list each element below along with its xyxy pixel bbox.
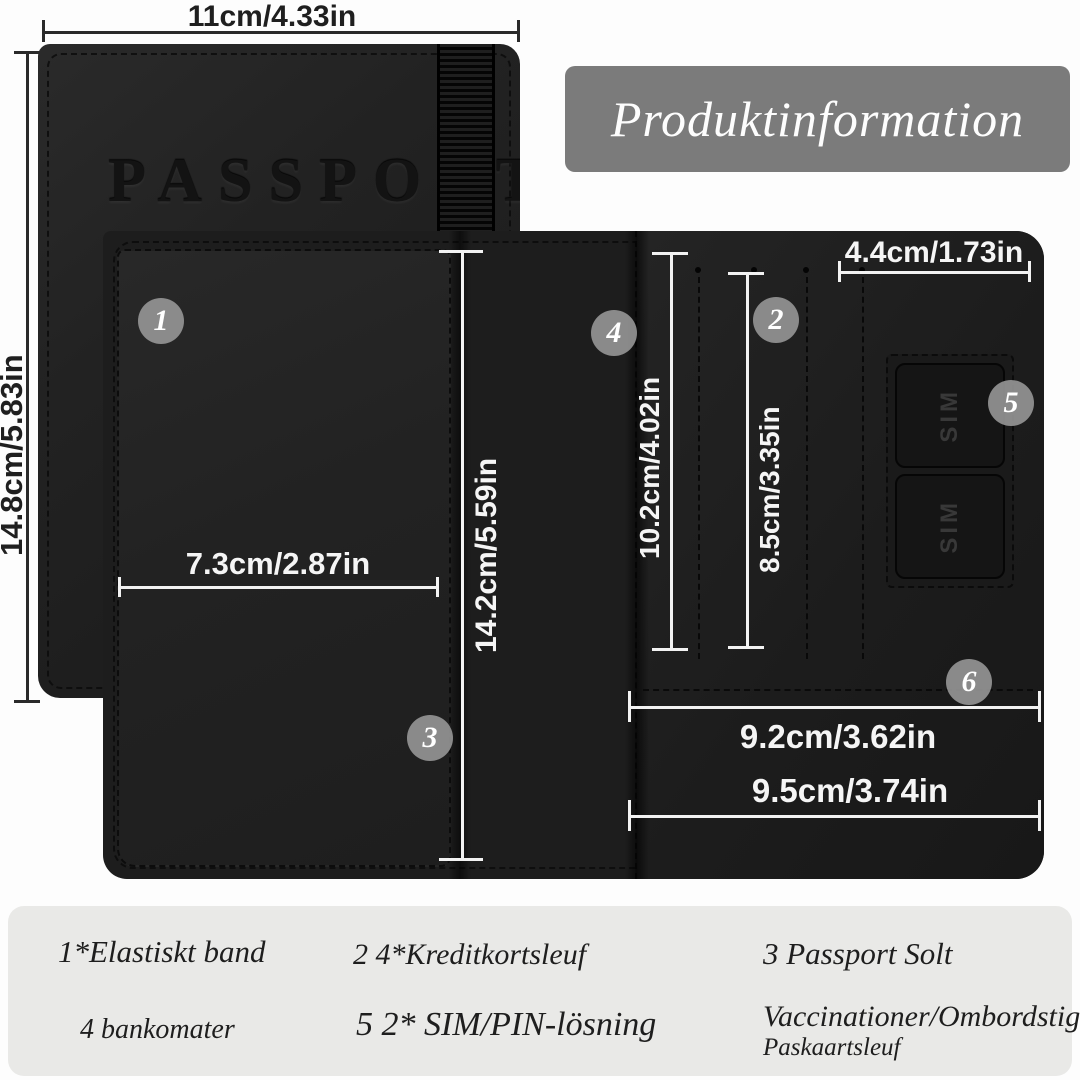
product-infographic: PASSPORT SIM SIM Produktinformation 11cm…	[0, 0, 1080, 1080]
card-slot-stitch	[806, 277, 808, 659]
dim-cover-width-label: 11cm/4.33in	[112, 0, 432, 34]
dim-sim-width-line	[838, 271, 1030, 274]
dim-card-slot-line	[746, 272, 749, 648]
callout-2: 2	[753, 297, 799, 343]
dim-tick	[439, 250, 483, 253]
callout-1: 1	[138, 298, 184, 344]
dim-tick	[14, 700, 40, 703]
dim-outer-pocket-line	[628, 815, 1040, 818]
callout-number: 2	[769, 303, 784, 337]
callout-number: 4	[607, 316, 622, 350]
dim-tick	[118, 577, 121, 597]
sim-slot-label: SIM	[936, 499, 964, 554]
dim-left-pocket-width-label: 7.3cm/2.87in	[118, 546, 438, 582]
sim-slot-label: SIM	[936, 388, 964, 443]
legend-item-5: 5 2* SIM/PIN-lösning	[356, 1006, 656, 1044]
dim-tick	[728, 646, 764, 649]
dim-slot-column-label: 10.2cm/4.02in	[634, 355, 666, 580]
dim-tick	[439, 858, 483, 861]
dim-tick	[628, 691, 631, 722]
dim-tick	[436, 577, 439, 597]
callout-number: 6	[962, 665, 977, 699]
dim-slot-column-line	[670, 252, 673, 650]
callout-3: 3	[407, 715, 453, 761]
sim-slot-2: SIM	[895, 474, 1005, 579]
fold-shadow	[449, 231, 471, 879]
legend-item-1: 1*Elastiskt band	[58, 934, 266, 970]
elastic-band	[437, 44, 495, 242]
legend-item-4: 4 bankomater	[80, 1014, 235, 1046]
callout-4: 4	[591, 310, 637, 356]
title-banner: Produktinformation	[565, 66, 1070, 172]
dim-tick	[42, 20, 45, 42]
dim-cover-height-label: 14.8cm/5.83in	[0, 285, 30, 625]
legend-item-3: 3 Passport Solt	[763, 936, 952, 972]
dim-interior-height-line	[461, 250, 464, 860]
dim-tick	[14, 51, 40, 54]
legend-panel: 1*Elastiskt band 2 4*Kreditkortsleuf 3 P…	[8, 906, 1072, 1076]
card-slot-stitch	[698, 277, 700, 659]
stitch-hole	[803, 267, 809, 273]
legend-item-6-line2: Paskaartsleuf	[763, 1034, 901, 1062]
dim-cover-width-line	[42, 31, 519, 34]
callout-6: 6	[946, 659, 992, 705]
callout-number: 3	[423, 721, 438, 755]
callout-number: 5	[1004, 386, 1019, 420]
callout-number: 1	[154, 304, 169, 338]
dim-inner-pocket-line	[628, 706, 1040, 709]
dim-tick	[652, 648, 688, 651]
dim-card-slot-label: 8.5cm/3.35in	[754, 385, 786, 595]
legend-item-2: 2 4*Kreditkortsleuf	[353, 938, 586, 972]
sim-slot-1: SIM	[895, 363, 1005, 468]
dim-tick	[838, 261, 841, 282]
dim-tick	[517, 20, 520, 42]
legend-item-6-line1: Vaccinationer/Ombordstigning	[763, 1000, 1080, 1034]
dim-tick	[1038, 691, 1041, 722]
dim-sim-width-label: 4.4cm/1.73in	[834, 236, 1034, 270]
callout-5: 5	[988, 380, 1034, 426]
dim-tick	[628, 800, 631, 831]
dim-interior-height-label: 14.2cm/5.59in	[470, 430, 504, 680]
dim-outer-pocket-label: 9.5cm/3.74in	[700, 772, 1000, 810]
page-title: Produktinformation	[611, 90, 1024, 148]
dim-tick	[1038, 800, 1041, 831]
dim-left-pocket-width-line	[118, 586, 438, 589]
dim-inner-pocket-label: 9.2cm/3.62in	[688, 718, 988, 756]
dim-tick	[728, 272, 764, 275]
card-slot-stitch	[862, 277, 864, 659]
dim-tick	[652, 252, 688, 255]
stitch-hole	[695, 267, 701, 273]
dim-tick	[1028, 261, 1031, 282]
